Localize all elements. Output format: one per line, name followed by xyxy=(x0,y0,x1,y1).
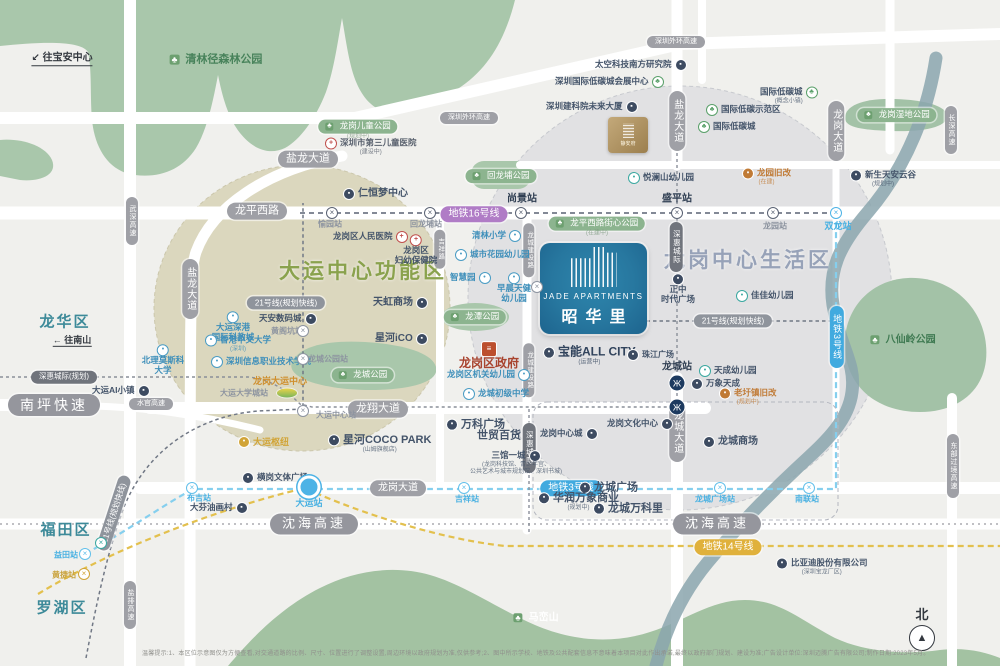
poi-row: •深圳信息职业技术学院 xyxy=(211,356,311,368)
biz-icon: ▪ xyxy=(305,313,317,325)
station-label: 吉祥站 xyxy=(455,494,479,503)
station-label: 双龙站 xyxy=(824,221,851,231)
park-badge: ♣龙平西路街心公园(在建中) xyxy=(549,217,645,238)
poi: •早晨天健幼儿园 xyxy=(497,272,531,304)
road-badge: 龙岗大道 xyxy=(370,480,426,496)
biz-icon: ▪ xyxy=(416,297,428,309)
poi: •北理莫斯科大学 xyxy=(142,344,185,376)
red-icon: + xyxy=(325,138,337,150)
poi: 龙岗大运中心 xyxy=(253,376,307,386)
poi-row: 深圳建科院未来大厦▪ xyxy=(546,101,638,113)
edu-icon: • xyxy=(463,388,475,400)
poi-row: 清林小学• xyxy=(472,230,521,242)
district-label: 福田区 xyxy=(40,521,91,538)
metro-logo-icon: Ж xyxy=(669,375,686,392)
project-logo: JADE APARTMENTS 昭华里 xyxy=(540,243,647,334)
kid-icon: • xyxy=(699,365,711,377)
direction-label: ← 往南山 xyxy=(53,335,92,347)
park-badge-pill: ♣龙潭公园 xyxy=(444,310,506,324)
biz-icon: ▪ xyxy=(850,170,862,182)
poi: ▪比亚迪股份有限公司(深圳宝龙厂区) xyxy=(776,558,868,577)
poi: 天安数码城▪ xyxy=(259,313,317,325)
gov-icon: ≡ xyxy=(481,341,497,357)
project-name-cn: 昭华里 xyxy=(553,303,633,327)
station-marker: × xyxy=(95,537,107,549)
poi-sub: (龙岗科技馆、青少年宫、 xyxy=(482,462,550,469)
poi: •悦澜山幼儿园 xyxy=(628,172,694,184)
station-label: 南联站 xyxy=(795,494,819,503)
biz-icon: ▪ xyxy=(242,472,254,484)
station-label: 益田站 xyxy=(54,550,78,559)
org-icon: ▪ xyxy=(719,388,731,400)
biz-icon: ▪ xyxy=(538,493,550,505)
poi-row: ♣国际低碳城 xyxy=(698,121,756,133)
biz-icon: ▪ xyxy=(586,428,598,440)
eco-icon: ♣ xyxy=(806,87,818,99)
metro-line-badge: 深惠城际(规划) xyxy=(31,371,97,384)
eco-icon: ♣ xyxy=(706,104,718,116)
tree-icon: ♣ xyxy=(325,123,333,131)
road-badge: 沈海高速 xyxy=(270,514,358,535)
station-label: 大运站 xyxy=(295,498,322,508)
station-marker: × xyxy=(830,207,842,219)
road-badge: 长深高速 xyxy=(945,106,957,154)
park-badge: ♣龙城公园 xyxy=(332,368,394,382)
tree-icon: ♣ xyxy=(339,371,347,379)
poi: 龙岗文化中心▪ xyxy=(607,418,673,430)
poi: ▪宝能ALL CITY(运营中) xyxy=(543,346,636,367)
edu-icon: • xyxy=(455,249,467,261)
park-badge-pill: ♣龙平西路街心公园 xyxy=(549,217,645,231)
poi-sub: 公共艺术与城市规划馆、深圳书城) xyxy=(470,469,562,476)
poi-sub: (规划中) xyxy=(568,505,590,512)
poi-row: ▪老圩镇旧改 xyxy=(719,388,777,400)
poi: ▪华润万象商业(规划中) xyxy=(538,492,619,512)
park-badge: ♣回龙埔公园 xyxy=(466,169,537,183)
road-badge: 盐排高速 xyxy=(124,581,136,629)
station-marker: × xyxy=(424,207,436,219)
poi-row: ▪星河COCO PARK xyxy=(328,434,431,447)
poi-row: 龙岗文化中心▪ xyxy=(607,418,673,430)
station-label: 盛平站 xyxy=(662,193,692,205)
station-label: 回龙埔站 xyxy=(410,219,442,228)
station-label: 愉园站 xyxy=(318,219,342,228)
poi: •大运枢纽 xyxy=(238,436,289,448)
poi: ▪龙园旧改(在建) xyxy=(742,168,791,187)
district-label: 罗湖区 xyxy=(36,599,87,616)
poi: 大芬油画村▪ xyxy=(190,502,248,514)
poi: +深圳市第三儿童医院(建设中) xyxy=(325,138,417,157)
poi-row: •香港中文大学 xyxy=(205,335,271,347)
poi-row: ▪仁恒梦中心 xyxy=(343,188,408,200)
biz-icon: ▪ xyxy=(691,378,703,390)
metro-line-14 xyxy=(38,488,1000,594)
tree-icon: ♣ xyxy=(513,613,522,622)
poi: •龙城初级中学 xyxy=(463,388,529,400)
station-marker: × xyxy=(297,325,309,337)
biz-icon: ▪ xyxy=(138,385,150,397)
station-marker: × xyxy=(671,207,683,219)
road-badge: 深圳外环高速 xyxy=(647,36,705,48)
project-name-en: JADE APARTMENTS xyxy=(543,292,643,301)
biz-icon: ▪ xyxy=(627,349,639,361)
station-label: 龙城站 xyxy=(662,361,692,373)
park-badge: ♣龙潭公园 xyxy=(444,310,506,324)
station-label: 龙城广场站 xyxy=(695,494,735,503)
poi-row: 龙岗中心城▪ xyxy=(540,428,598,440)
station-label: 布吉站 xyxy=(187,493,211,502)
road-badge: 龙岗大道 xyxy=(828,101,844,161)
poi: 清林小学• xyxy=(472,230,521,242)
station-marker: × xyxy=(79,548,91,560)
poi-row: 世贸百货 xyxy=(477,430,521,443)
location-map: JADE APARTMENTS 昭华里 静安府 北 ▲ 温馨提示:1、本区位示意… xyxy=(0,0,1000,666)
road-badge: 东部过境高速 xyxy=(947,434,959,498)
tree-icon: ♣ xyxy=(864,111,872,119)
poi: ♣国际低碳示范区 xyxy=(706,104,781,116)
poi-row: ▪新生天安云谷 xyxy=(850,170,916,182)
station-marker: × xyxy=(531,281,543,293)
stadium-icon xyxy=(277,389,297,398)
poi-row: ▪比亚迪股份有限公司 xyxy=(776,558,868,570)
station-label: 龙城公园站 xyxy=(308,354,348,363)
edu-icon: • xyxy=(509,230,521,242)
poi: •香港中文大学(深圳) xyxy=(205,335,271,354)
biz-icon: ▪ xyxy=(236,502,248,514)
road-badge: 南坪快速 xyxy=(8,394,100,416)
road-badge: 龙翔大道 xyxy=(348,401,408,418)
biz-icon: ▪ xyxy=(626,101,638,113)
district-label: 龙华区 xyxy=(39,313,90,330)
biz-icon: ▪ xyxy=(328,435,340,447)
poi-row: •佳佳幼儿园 xyxy=(736,290,794,302)
eco-icon: ♣ xyxy=(698,121,710,133)
kid-icon: • xyxy=(736,290,748,302)
biz-icon: ▪ xyxy=(446,419,458,431)
poi-row: ▪龙城商场 xyxy=(703,436,758,448)
poi: ▪星河COCO PARK(山姆旗舰店) xyxy=(328,434,431,454)
poi: 星河iCO▪ xyxy=(375,333,428,345)
poi-sub: (山姆旗舰店) xyxy=(363,447,397,454)
road-badge: 武深高速 xyxy=(126,197,138,245)
station-marker: × xyxy=(326,207,338,219)
poi: 太空科技南方研究院▪ xyxy=(595,59,687,71)
station-label: 尚景站 xyxy=(507,193,537,205)
park-label: ♣清林径森林公园 xyxy=(170,54,263,67)
park-badge-pill: ♣龙岗儿童公园 xyxy=(318,120,397,134)
road-badge: 盐龙大道 xyxy=(182,259,198,319)
poi-row: 天虹商场▪ xyxy=(373,297,428,309)
station-marker: × xyxy=(803,482,815,494)
kid-icon: • xyxy=(628,172,640,184)
road-badge: 水官高速 xyxy=(129,398,173,410)
poi-row: 深圳国际低碳城会展中心♣ xyxy=(555,76,664,88)
tree-icon: ♣ xyxy=(451,313,459,321)
poi: •城市花园幼儿园 xyxy=(455,249,530,261)
poi-sub: (建设中) xyxy=(360,150,382,157)
poi-row: ♣国际低碳示范区 xyxy=(706,104,781,116)
compass-north-label: 北 xyxy=(909,604,935,623)
poi: 龙岗中心城▪ xyxy=(540,428,598,440)
poi-row: •龙城初级中学 xyxy=(463,388,529,400)
road-badge: 深圳外环高速 xyxy=(440,112,498,124)
tree-icon: ♣ xyxy=(170,55,180,65)
station-label: 大运中心站 xyxy=(316,410,356,419)
poi-row: •城市花园幼儿园 xyxy=(455,249,530,261)
poi-row: 天安数码城▪ xyxy=(259,313,317,325)
poi-sub: (规划中) xyxy=(737,400,759,407)
eco-icon: ♣ xyxy=(652,76,664,88)
road-badge: 盐龙大道 xyxy=(669,91,685,151)
poi: 智慧园• xyxy=(450,272,491,284)
building-icon xyxy=(571,247,617,287)
compass: 北 ▲ xyxy=(909,604,935,651)
poi-row: ▪珠江广场 xyxy=(627,349,674,361)
building-icon xyxy=(623,123,634,138)
station-marker: × xyxy=(78,568,90,580)
poi: 龙岗区机关幼儿园• xyxy=(447,369,530,381)
station-marker: × xyxy=(297,405,309,417)
poi: ▪仁恒梦中心 xyxy=(343,188,408,200)
metro-line-badge: 地铁3号线 xyxy=(830,306,844,368)
biz-icon: ▪ xyxy=(343,188,355,200)
disclaimer-text: 温馨提示:1、本区位示意图仅为方便查看,对交通道路的比例、尺寸、位置进行了调整设… xyxy=(142,648,929,657)
poi: ≡龙岗区政府 xyxy=(459,341,519,371)
metro-line-badge: 深惠城际 xyxy=(670,222,683,272)
poi: 三馆一城▪(龙岗科技馆、青少年宫、公共艺术与城市规划馆、深圳书城) xyxy=(470,450,562,476)
biz-icon: ▪ xyxy=(661,418,673,430)
edu-icon: • xyxy=(479,272,491,284)
park-badge: ♣龙岗湿地公园 xyxy=(857,108,936,122)
park-label: ♣马峦山 xyxy=(513,612,558,624)
zone-label: 龙岗中心生活区 xyxy=(664,249,832,273)
poi: 大运AI小镇▪ xyxy=(92,385,150,397)
biz-icon: ▪ xyxy=(543,347,555,359)
metro-line-badge: 地铁14号线 xyxy=(694,539,761,555)
org-icon: ▪ xyxy=(742,168,754,180)
poi-row: 太空科技南方研究院▪ xyxy=(595,59,687,71)
poi: ▪珠江广场 xyxy=(627,349,674,361)
park-badge-sub: (在建中) xyxy=(586,230,608,237)
poi-row: 星河iCO▪ xyxy=(375,333,428,345)
poi: ▪老圩镇旧改(规划中) xyxy=(719,388,777,407)
park-label: ♣八仙岭公园 xyxy=(870,334,935,346)
tree-icon: ♣ xyxy=(556,220,564,228)
poi-sub: (规划中) xyxy=(872,182,894,189)
poi-row: 龙岗大运中心 xyxy=(253,376,307,386)
station-marker: × xyxy=(515,207,527,219)
biz-icon: ▪ xyxy=(703,436,715,448)
edu-icon: • xyxy=(211,356,223,368)
poi-sub: (深圳) xyxy=(230,347,246,354)
poi: +龙岗区妇幼保健院 xyxy=(395,234,438,266)
station-label: 龙园站 xyxy=(763,221,787,230)
poi: 深圳建科院未来大厦▪ xyxy=(546,101,638,113)
poi: •深圳信息职业技术学院 xyxy=(211,356,311,368)
station-label: 大运大学城站 xyxy=(220,388,268,397)
poi-sub: (运营中) xyxy=(578,359,600,366)
poi: ♣国际低碳城 xyxy=(698,121,756,133)
park-badge-pill: ♣龙岗湿地公园 xyxy=(857,108,936,122)
poi-row: 大芬油画村▪ xyxy=(190,502,248,514)
metro-line-badge: 21号线(规划快线) xyxy=(694,314,772,327)
poi: 国际低碳城♣(概念小镇) xyxy=(760,87,818,106)
poi-row: +深圳市第三儿童医院 xyxy=(325,138,417,150)
biz-icon: ▪ xyxy=(416,333,428,345)
biz-icon: ▪ xyxy=(776,558,788,570)
poi-row: ▪华润万象商业 xyxy=(538,492,619,505)
station-marker: × xyxy=(714,482,726,494)
poi-row: 大运AI小镇▪ xyxy=(92,385,150,397)
poi: ▪新生天安云谷(规划中) xyxy=(850,170,916,189)
road-badge: 龙平西路 xyxy=(227,203,287,220)
poi-row: 三馆一城▪ xyxy=(491,450,540,462)
station-marker: × xyxy=(767,207,779,219)
edu-icon: • xyxy=(518,369,530,381)
sister-project-logo: 静安府 xyxy=(608,117,648,153)
station-marker: × xyxy=(186,482,198,494)
biz-icon: ▪ xyxy=(529,450,541,462)
metro-station-marker xyxy=(298,476,321,499)
poi-sub: (在建) xyxy=(759,180,775,187)
poi: 世贸百货 xyxy=(477,430,521,443)
forest-north xyxy=(0,0,515,176)
poi: •天成幼儿园 xyxy=(699,365,757,377)
poi: 深圳国际低碳城会展中心♣ xyxy=(555,76,664,88)
tree-icon: ♣ xyxy=(473,172,481,180)
metro-line-badge: 21号线(规划快线) xyxy=(247,296,325,309)
park-badge-pill: ♣回龙埔公园 xyxy=(466,169,537,183)
station-marker: × xyxy=(297,353,309,365)
poi: ▪正中时代广场 xyxy=(661,273,695,305)
road-badge: 沈海高速 xyxy=(673,514,761,535)
poi-row: ▪龙园旧改 xyxy=(742,168,791,180)
biz-icon: ▪ xyxy=(675,59,687,71)
poi-row: ▪宝能ALL CITY xyxy=(543,346,636,360)
poi-sub: (深圳宝龙厂区) xyxy=(802,570,842,577)
edu-icon: • xyxy=(205,335,217,347)
forest-north-blob xyxy=(0,140,53,181)
poi-row: •悦澜山幼儿园 xyxy=(628,172,694,184)
poi: 天虹商场▪ xyxy=(373,297,428,309)
poi-row: 国际低碳城♣ xyxy=(760,87,818,99)
poi-row: •天成幼儿园 xyxy=(699,365,757,377)
poi-row: •大运枢纽 xyxy=(238,436,289,448)
poi: •佳佳幼儿园 xyxy=(736,290,794,302)
station-marker: × xyxy=(458,482,470,494)
gold-icon: • xyxy=(238,436,250,448)
poi-row: 龙岗区机关幼儿园• xyxy=(447,369,530,381)
sister-project-name: 静安府 xyxy=(620,140,635,147)
metro-logo-icon: Ж xyxy=(669,399,686,416)
tree-icon: ♣ xyxy=(870,335,879,344)
metro-line-badge: 地铁16号线 xyxy=(440,206,507,222)
poi: ▪龙城商场 xyxy=(703,436,758,448)
station-label: 黄捷站 xyxy=(52,570,76,579)
poi-row: 智慧园• xyxy=(450,272,491,284)
direction-label: ↙ 往宝安中心 xyxy=(31,52,92,66)
park-badge-pill: ♣龙城公园 xyxy=(332,368,394,382)
